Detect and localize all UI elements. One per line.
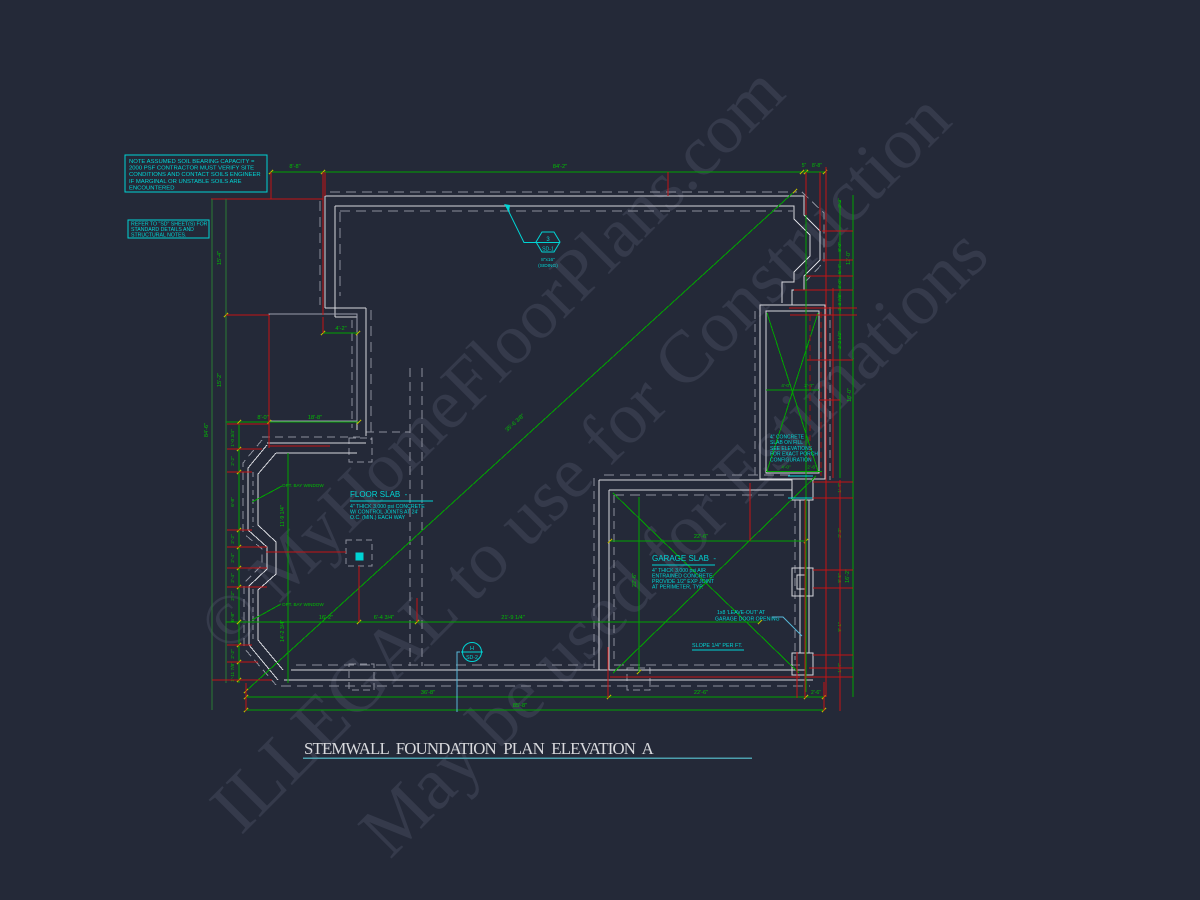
svg-text:36'-8": 36'-8" — [421, 690, 435, 696]
svg-text:6'-8": 6'-8" — [230, 612, 236, 622]
svg-text:2'-2": 2'-2" — [230, 456, 236, 466]
svg-text:ENCOUNTERED: ENCOUNTERED — [129, 185, 175, 191]
svg-text:16'-2": 16'-2" — [845, 569, 851, 583]
svg-text:6'-4 3/4": 6'-4 3/4" — [374, 615, 394, 621]
svg-text:84'-2": 84'-2" — [553, 164, 567, 170]
svg-text:18'-8": 18'-8" — [308, 415, 322, 421]
svg-text:OPT. BAY WINDOW: OPT. BAY WINDOW — [282, 602, 324, 607]
svg-text:GARAGE DOOR OPENING: GARAGE DOOR OPENING — [715, 617, 780, 623]
svg-text:STRUCTURAL NOTES.: STRUCTURAL NOTES. — [131, 233, 186, 239]
svg-text:4'-0": 4'-0" — [781, 465, 791, 471]
svg-text:14'-2 3/4": 14'-2 3/4" — [280, 620, 286, 642]
svg-text:15'-4": 15'-4" — [217, 251, 223, 265]
svg-text:21'-9 1/4": 21'-9 1/4" — [501, 615, 525, 621]
svg-text:2'-4": 2'-4" — [230, 553, 236, 563]
svg-text:8'-8": 8'-8" — [812, 163, 822, 169]
svg-text:16'-2": 16'-2" — [319, 615, 333, 621]
svg-text:2'-2": 2'-2" — [837, 198, 843, 208]
svg-text:IF MARGINAL OR UNSTABLE SOILS: IF MARGINAL OR UNSTABLE SOILS ARE — [129, 179, 242, 185]
svg-text:2'-6": 2'-6" — [811, 690, 821, 696]
svg-text:SD-1: SD-1 — [542, 247, 554, 253]
svg-text:SD-2: SD-2 — [466, 655, 478, 661]
svg-text:3'-0": 3'-0" — [837, 279, 843, 289]
svg-text:2000 PSF CONTRACTOR MUST VERIF: 2000 PSF CONTRACTOR MUST VERIFY SITE — [129, 166, 254, 172]
svg-text:8'-0": 8'-0" — [837, 242, 843, 252]
svg-text:6'-8": 6'-8" — [230, 497, 236, 507]
svg-text:CONDITIONS AND CONTACT SOILS E: CONDITIONS AND CONTACT SOILS ENGINEER — [129, 172, 261, 178]
svg-text:22'-6": 22'-6" — [694, 690, 708, 696]
svg-text:22'-6": 22'-6" — [632, 573, 638, 587]
svg-text:85'-8": 85'-8" — [513, 703, 527, 709]
svg-text:NOTE ASSUMED SOIL BEARING CAPA: NOTE ASSUMED SOIL BEARING CAPACITY = — [129, 159, 255, 165]
svg-text:4'-0": 4'-0" — [781, 383, 791, 389]
svg-text:5": 5" — [802, 163, 807, 169]
svg-text:5'-4": 5'-4" — [837, 264, 843, 274]
svg-text:15'-2": 15'-2" — [217, 373, 223, 387]
svg-text:1'-11 7/8": 1'-11 7/8" — [230, 662, 236, 682]
svg-text:22'-6": 22'-6" — [694, 534, 708, 540]
svg-text:2'-2 1/2": 2'-2 1/2" — [837, 331, 843, 349]
svg-text:GARAGE SLAB -: GARAGE SLAB - — [652, 554, 716, 563]
svg-text:SLOPE 1/4" PER FT.: SLOPE 1/4" PER FT. — [692, 643, 742, 649]
svg-text:4'-2": 4'-2" — [335, 326, 346, 332]
svg-text:2'-4": 2'-4" — [230, 573, 236, 583]
svg-text:2'-2": 2'-2" — [230, 591, 236, 601]
svg-text:12'-0": 12'-0" — [846, 251, 852, 265]
svg-text:2'-2": 2'-2" — [230, 534, 236, 544]
svg-text:8'-8": 8'-8" — [289, 164, 300, 170]
svg-text:84'-6": 84'-6" — [204, 423, 210, 437]
svg-text:STEMWALL FOUNDATION PLAN ELEVA: STEMWALL FOUNDATION PLAN ELEVATION A — [304, 739, 654, 758]
svg-text:2'-0": 2'-0" — [804, 383, 814, 389]
svg-text:1'-0 3/4": 1'-0 3/4" — [230, 429, 236, 447]
svg-text:8"x16": 8"x16" — [541, 257, 555, 263]
svg-text:H: H — [470, 646, 474, 652]
svg-text:18'-0": 18'-0" — [847, 388, 853, 402]
svg-text:AT PERIMETER, TYP.: AT PERIMETER, TYP. — [652, 585, 704, 591]
svg-text:8'-0": 8'-0" — [257, 415, 268, 421]
svg-text:2'-2": 2'-2" — [230, 649, 236, 659]
svg-text:CONFIGURATION: CONFIGURATION — [770, 457, 812, 463]
svg-text:O.C. (MIN.) EACH WAY: O.C. (MIN.) EACH WAY — [350, 515, 406, 521]
svg-text:1x8 'LEAVE-OUT' AT: 1x8 'LEAVE-OUT' AT — [717, 610, 766, 616]
svg-text:OPT. BAY WINDOW: OPT. BAY WINDOW — [282, 483, 324, 488]
svg-text:(SIDING): (SIDING) — [538, 263, 558, 269]
svg-text:2'-6": 2'-6" — [807, 465, 817, 471]
svg-text:FLOOR SLAB -: FLOOR SLAB - — [350, 490, 408, 499]
svg-text:11'-9 1/4": 11'-9 1/4" — [280, 505, 286, 527]
